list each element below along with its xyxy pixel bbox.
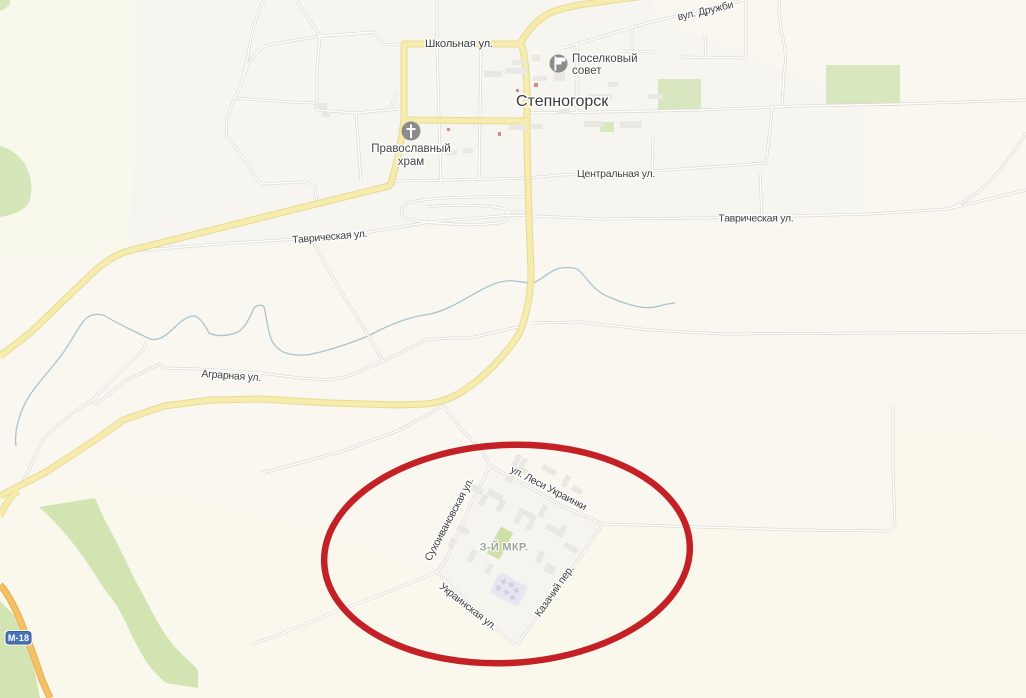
svg-text:З-Й МКР.: З-Й МКР. (480, 541, 529, 554)
svg-text:Таврическая ул.: Таврическая ул. (718, 213, 793, 225)
svg-text:Поселковый: Поселковый (572, 53, 638, 65)
svg-text:храм: храм (398, 156, 425, 168)
svg-text:Центральная ул.: Центральная ул. (577, 168, 655, 180)
svg-text:Степногорск: Степногорск (516, 93, 609, 110)
svg-text:совет: совет (572, 65, 602, 77)
svg-text:Школьная ул.: Школьная ул. (425, 38, 493, 50)
svg-text:М-18: М-18 (8, 633, 29, 643)
svg-text:Православный: Православный (371, 143, 450, 155)
